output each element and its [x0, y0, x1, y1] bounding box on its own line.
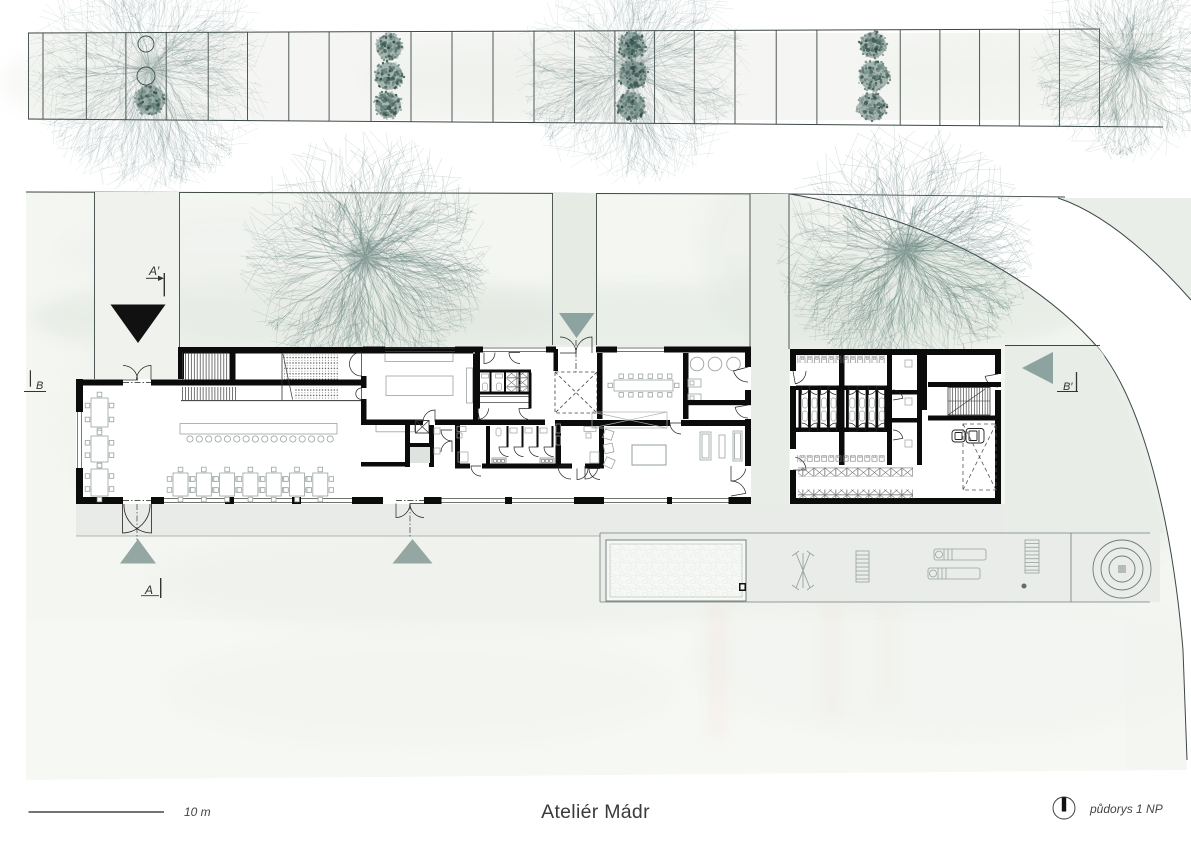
svg-text:10 m: 10 m: [184, 805, 211, 819]
svg-text:půdorys 1 NP: půdorys 1 NP: [1089, 802, 1163, 816]
svg-text:Ateliér Mádr: Ateliér Mádr: [541, 801, 650, 823]
svg-text:A: A: [144, 583, 153, 597]
svg-text:B: B: [36, 380, 43, 392]
